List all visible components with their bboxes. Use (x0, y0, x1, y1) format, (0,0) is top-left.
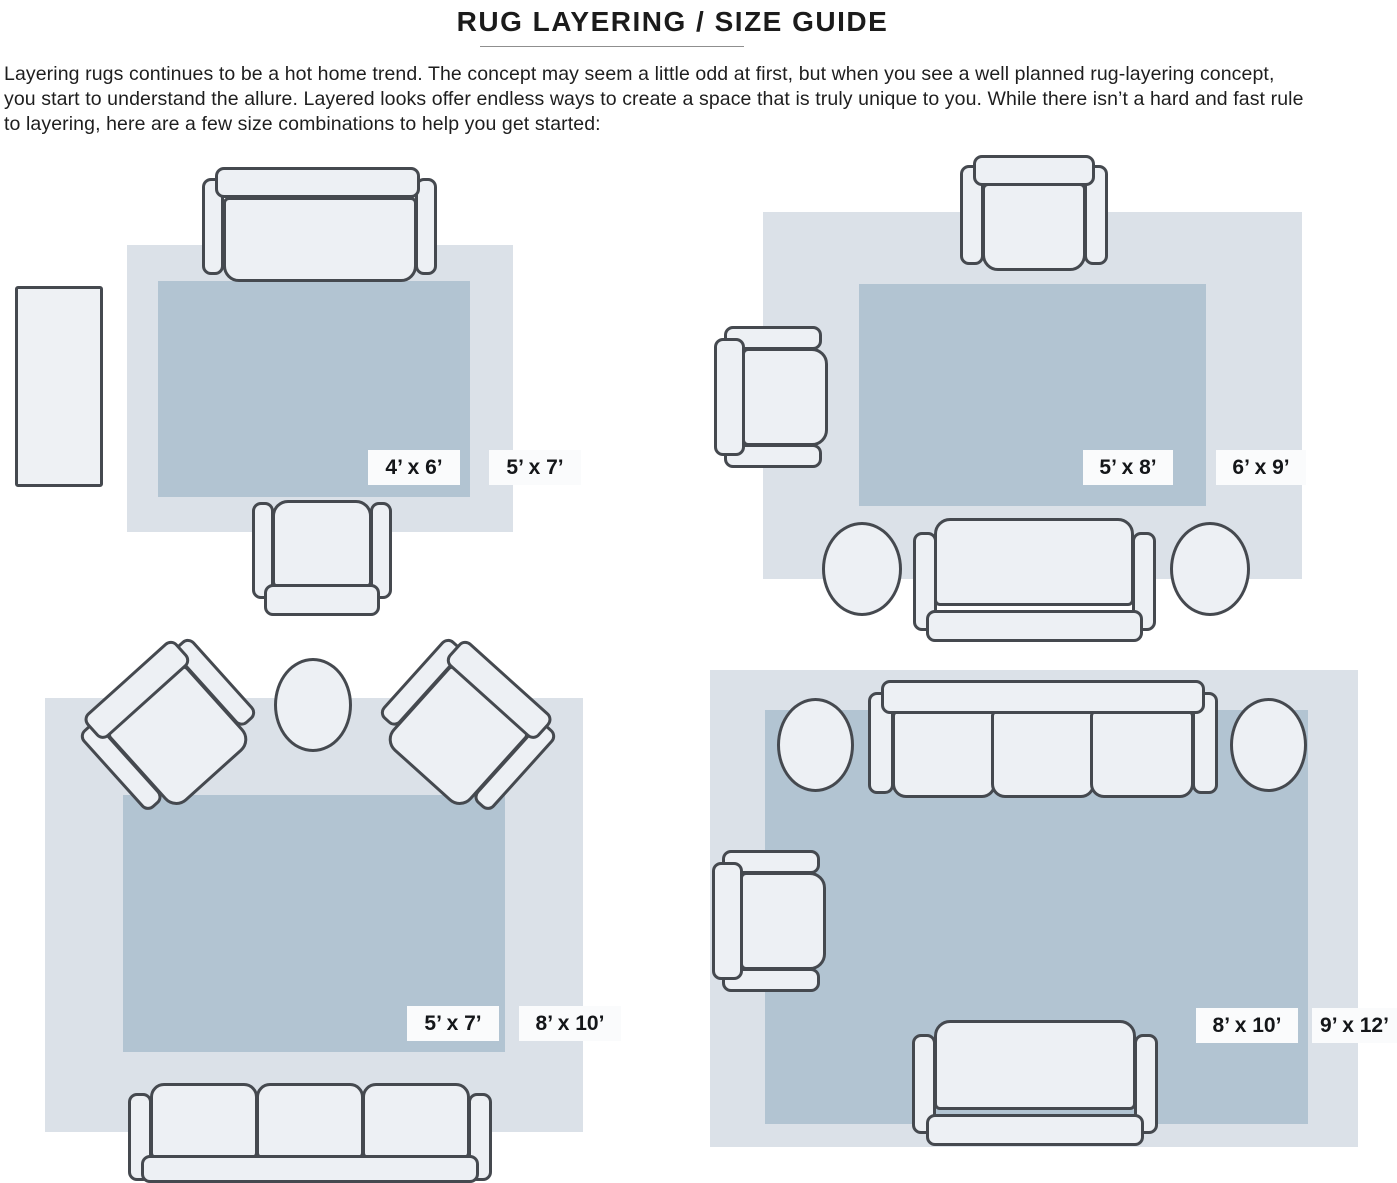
armchair-seat (272, 500, 372, 588)
armchair-icon (714, 326, 832, 468)
armchair-icon (712, 850, 830, 992)
sofa-seat (223, 197, 417, 282)
outer-rug-size-label: 8’ x 10’ (519, 1006, 621, 1041)
armchair-back (714, 338, 745, 456)
sofa-icon (202, 167, 437, 282)
loveseat-back (926, 1114, 1144, 1146)
seat-cushion (256, 1083, 364, 1159)
sofa-back (881, 680, 1205, 714)
intro-text-line: Layering rugs continues to be a hot home… (4, 63, 1274, 86)
page-title: RUG LAYERING / SIZE GUIDE (0, 6, 1345, 38)
sofa-icon (128, 1083, 492, 1183)
armchair-back (264, 584, 380, 616)
sofa-back (141, 1155, 479, 1183)
round-table-icon (1230, 698, 1307, 792)
armchair-icon (252, 492, 392, 618)
armchair-back (973, 155, 1095, 186)
armchair-seat (742, 348, 828, 446)
sofa-back (215, 167, 420, 198)
seat-cushion (1090, 710, 1194, 798)
seat-cushion (892, 710, 996, 798)
loveseat-seat (934, 1020, 1136, 1110)
sofa-icon (868, 680, 1218, 800)
armchair-seat (982, 183, 1086, 271)
sofa-icon (913, 518, 1156, 642)
intro-text-line: you start to understand the allure. Laye… (4, 88, 1304, 111)
inner-rug-size-label: 5’ x 7’ (407, 1006, 499, 1041)
seat-cushion (362, 1083, 470, 1159)
armchair-icon (960, 155, 1108, 273)
outer-rug-size-label: 9’ x 12’ (1312, 1008, 1397, 1043)
side-table-icon (15, 286, 103, 487)
intro-text-line: to layering, here are a few size combina… (4, 113, 601, 136)
seat-cushion (991, 710, 1095, 798)
armchair-back (712, 862, 743, 980)
round-table-icon (1170, 522, 1250, 616)
rug-size-guide-page: RUG LAYERING / SIZE GUIDE Layering rugs … (0, 0, 1397, 1183)
seat-cushion (150, 1083, 258, 1159)
round-table-icon (822, 522, 902, 616)
round-table-icon (777, 698, 854, 792)
round-table-icon (274, 658, 352, 752)
inner-rug-size-label: 5’ x 8’ (1083, 450, 1173, 485)
sofa-back (926, 610, 1143, 642)
outer-rug-size-label: 6’ x 9’ (1216, 450, 1306, 485)
inner-rug-size-label: 4’ x 6’ (368, 450, 460, 485)
title-underline (480, 46, 744, 47)
sofa-seat (934, 518, 1134, 606)
outer-rug-size-label: 5’ x 7’ (489, 450, 581, 485)
armchair-seat (740, 872, 826, 970)
inner-rug-size-label: 8’ x 10’ (1196, 1008, 1298, 1043)
loveseat-icon (912, 1020, 1158, 1146)
